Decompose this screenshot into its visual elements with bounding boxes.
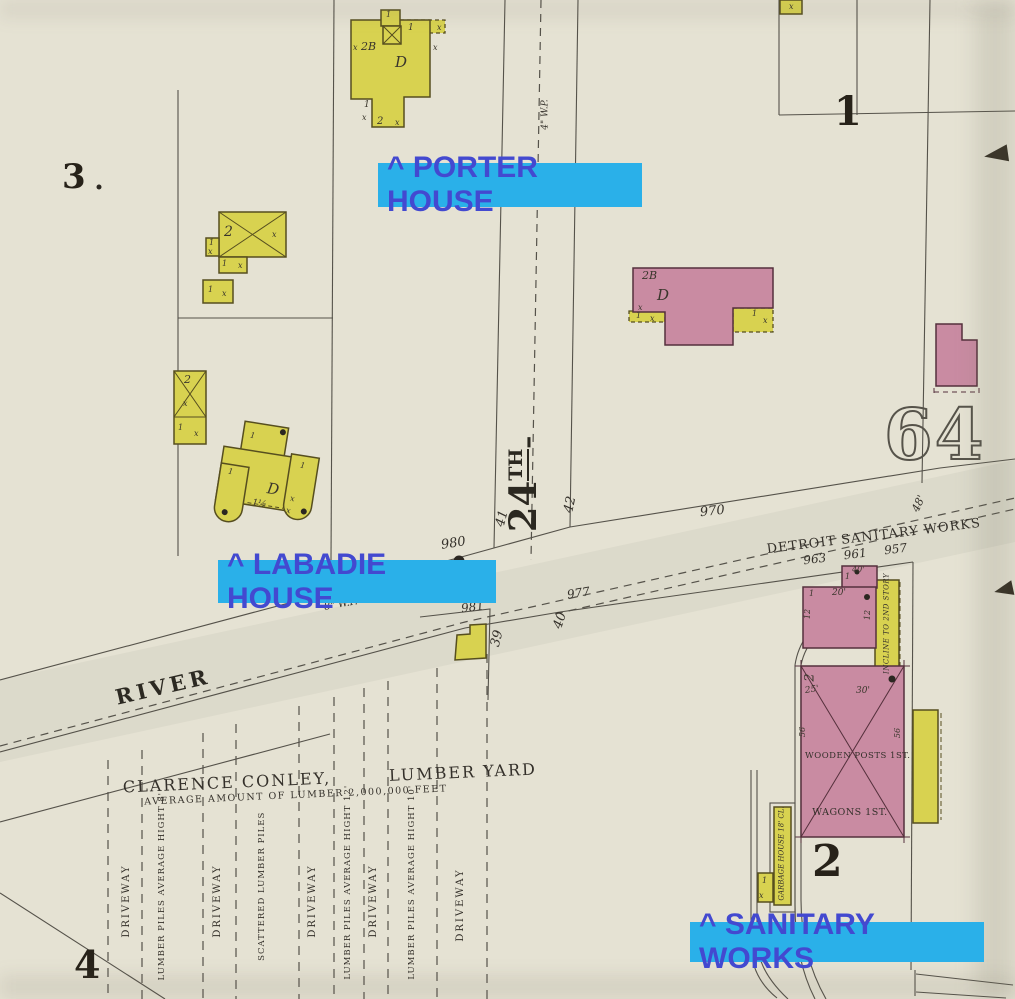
garbage-house-label: GARBAGE HOUSE 18' CL.	[779, 799, 786, 909]
scattered-piles-label: SCATTERED LUMBER PILES	[258, 736, 267, 999]
street-24th-east-edge	[570, 0, 578, 527]
wagons-label: WAGONS 1ST.	[810, 808, 890, 818]
mark-x: x	[285, 507, 291, 516]
mark-x: x	[272, 231, 277, 239]
dim-30: 30'	[856, 687, 870, 696]
driveway-label: DRIVEWAY	[213, 751, 223, 999]
mark-1: 1	[636, 312, 641, 320]
mark-x: x	[208, 248, 213, 256]
block-number-3: 3	[62, 160, 86, 194]
mark-x: x	[759, 892, 764, 900]
mark-1: 1	[386, 11, 391, 19]
street-24th-west-edge	[494, 0, 505, 548]
ink-blot	[983, 144, 1009, 164]
office-building	[455, 624, 486, 660]
annotation-sanitary-works: ^ SANITARY WORKS	[690, 922, 984, 962]
wooden-posts-label: WOODEN POSTS 1ST.	[805, 752, 900, 761]
lot-41: 41	[494, 509, 511, 528]
annotation-labadie-house: ^ LABADIE HOUSE	[218, 560, 496, 603]
dim-20: 20'	[832, 589, 846, 598]
block-number-1: 1	[834, 92, 862, 132]
mark-x: x	[650, 315, 655, 323]
mark-2B: 2B	[361, 41, 376, 52]
piles-10-label: LUMBER PILES AVERAGE HIGHT 10'	[408, 732, 417, 999]
labadie-house	[212, 419, 323, 535]
mark-x: x	[362, 114, 367, 122]
annotation-porter-house: ^ PORTER HOUSE	[378, 163, 642, 207]
dim-40: 40'	[852, 566, 864, 574]
water-pipe-4-label: 4" W.P.	[542, 85, 551, 145]
address-977: 977	[566, 585, 591, 600]
sanborn-fire-insurance-map: 3 1 2 4 64 24TH– RIVER 4" W.P. 8" W.P. 9…	[0, 0, 1015, 999]
sheet-number-64: 64	[884, 400, 985, 470]
mark-x: x	[194, 430, 199, 438]
mark-x: x	[222, 290, 227, 298]
mark-1: 1	[408, 24, 414, 33]
dim-25: 25'	[804, 685, 819, 696]
mark-1: 1	[208, 286, 213, 294]
driveway-label: DRIVEWAY	[456, 755, 466, 999]
small-pink-building	[936, 324, 977, 386]
mark-1: 1	[762, 877, 767, 885]
mark-1: 1	[178, 424, 183, 432]
mark-x: x	[763, 317, 768, 325]
mark-2: 2	[224, 225, 233, 239]
mark-D: D	[657, 288, 669, 303]
ink-dot	[97, 185, 102, 190]
height-12: 12	[804, 609, 812, 619]
height-56: 56	[894, 728, 902, 738]
driveway-label: DRIVEWAY	[122, 751, 132, 999]
mark-D: D	[266, 481, 280, 498]
lot-line	[331, 0, 334, 560]
incline-label: INCLINE TO 2ND STORY	[884, 569, 891, 679]
mark-x: x	[437, 24, 442, 32]
mark-x: x	[353, 44, 358, 52]
piles-12-label: LUMBER PILES AVERAGE HIGHT 12'	[344, 732, 353, 999]
street-label-th: TH	[505, 449, 529, 481]
lot-line	[779, 111, 1015, 115]
height-12: 12	[864, 610, 872, 620]
street-label-dash: –	[513, 436, 543, 449]
mark-D: D	[395, 55, 407, 70]
mark-1: 1	[752, 310, 757, 318]
mark-x: x	[789, 3, 794, 11]
mark-2: 2	[804, 673, 817, 681]
mark-x: x	[183, 400, 188, 408]
block-number-4: 4	[74, 946, 100, 984]
mark-2: 2	[184, 374, 191, 385]
mark-1: 1	[364, 101, 370, 110]
platform	[913, 710, 938, 823]
mark-1: 1	[222, 260, 227, 268]
mark-x: x	[395, 119, 400, 127]
address-970: 970	[699, 504, 725, 520]
office-building-svg	[450, 612, 510, 672]
mark-2B: 2B	[642, 270, 657, 281]
mark-1: 1	[209, 239, 214, 247]
street-label-24th: 24TH–	[505, 419, 549, 549]
driveway-label: DRIVEWAY	[369, 751, 379, 999]
mark-1: 1	[809, 590, 814, 598]
lot-42: 42	[562, 495, 578, 514]
driveway-label: DRIVEWAY	[308, 751, 318, 999]
mark-2: 2	[377, 117, 383, 127]
height-56: 56	[799, 727, 807, 737]
mark-x: x	[433, 44, 438, 52]
mark-1: 1	[845, 573, 850, 581]
post-dot	[864, 594, 870, 600]
mark-x: x	[289, 495, 295, 504]
block-number-2: 2	[812, 840, 843, 884]
mark-x: x	[238, 262, 243, 270]
piles-8-label: LUMBER PILES AVERAGE HIGHT 8'	[158, 736, 167, 999]
